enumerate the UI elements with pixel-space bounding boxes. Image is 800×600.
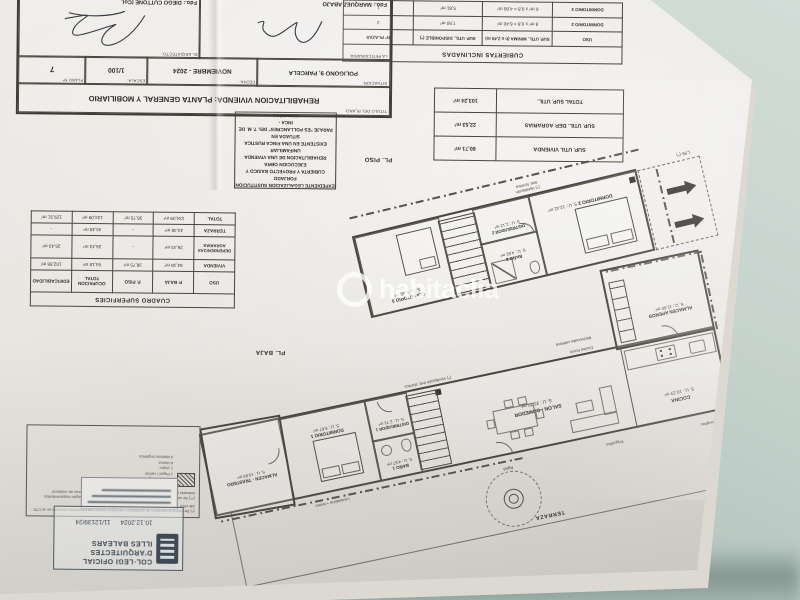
peticionaria-fdo: Fdo.: MARQUEZ ABAJO [323, 0, 387, 7]
hatched-legend-icon [177, 473, 195, 487]
escala-value: 1/100 [85, 66, 147, 74]
titulo-label: TITULO DEL PLANO: [345, 109, 387, 114]
college-logo-icon [156, 534, 178, 564]
legend-item: 3 Matèria Orgànica [99, 454, 173, 460]
escala-label: ESCALA: [127, 78, 145, 83]
stamp-org-line: ILLES BALEARS [83, 538, 153, 547]
expediente-line: EXISTENTE EN UNA FINCA RUSTICA SITUADA E… [235, 132, 335, 147]
expediente-line: EXPEDIENTE LEGALIZACION SUSTITUCION FORJ… [235, 175, 335, 190]
architects-college-stamp: COL·LEGI OFICIAL D'ARQUITECTES ILLES BAL… [53, 506, 184, 571]
arquitecto-label: EL ARQUITECTO: [162, 52, 198, 57]
plan-title: REHABILITACION VIVIENDA: PLANTA GENERAL … [19, 93, 389, 106]
title-block: TITULO DEL PLANO: REHABILITACION VIVIEND… [16, 0, 393, 118]
expediente-line: CUBIERTA Y PROYECTO BASICO Y EJECUCION O… [235, 161, 335, 176]
table-row: VIVIENDA 64,18 m² 38,75 m² 64,18 m² 102,… [31, 257, 235, 271]
plano-num-value: 7 [19, 64, 85, 74]
peticionaria-signature [249, 11, 329, 52]
arquitecto-signature [54, 5, 154, 52]
resumen-superficies-table: SUP. UTIL VIVIENDA 80,71 m² SUP. UTIL. D… [433, 88, 624, 163]
dimension-label: 1,98 (*) [676, 150, 691, 158]
watermark-logo-icon [337, 272, 372, 307]
fecha-value: NOVIEMBRE - 2024 [147, 67, 257, 75]
fecha-label: FECHA: [239, 80, 255, 85]
dining-chair [535, 409, 545, 419]
table-row: TOTAL SUP. UTIL. 103,24 m² [434, 88, 623, 114]
expediente-line: PARAJE "ES POLLANCRES" DEL T. M. DE INCA… [236, 118, 336, 133]
dining-chair [486, 419, 496, 429]
table-row: TERRAZA 43,48 m² - 43,48 m² - [31, 223, 235, 237]
table-row: SUP. UTIL VIVIENDA 80,71 m² [434, 136, 623, 162]
table-row: TOTAL 134,09 m² 38,75 m² 134,09 m² 129,3… [31, 211, 235, 225]
pl-piso-label: PL. PISO [358, 155, 398, 162]
legend-item: A Varios [99, 460, 173, 466]
table-row: DEPENDENCIAS AGRARIAS 26,43 m² - 26,43 m… [31, 235, 235, 259]
stamp-org-line: D'ARQUITECTES [82, 546, 152, 555]
legend-item: 1 Papel / cartón [99, 470, 173, 476]
arquitecto-fdo: Fdo.: DIEGO CUTTONE (Col. [121, 0, 197, 5]
pl-baja-label: PL. BAJA [250, 348, 290, 355]
table-header-row: USO P. BAJA P. PISO OCUPACION TOTAL EDIF… [30, 269, 234, 293]
bed-dorm1 [313, 432, 365, 482]
stamp-number: 11/12139/24 [75, 518, 110, 525]
stamp-date: 10.12.2024 [121, 518, 153, 525]
watermark: habitaclia [337, 272, 499, 307]
watermark-text: habitaclia [379, 274, 499, 305]
stamp-org-line: COL·LEGI OFICIAL [82, 555, 152, 564]
expediente-line: REHABILITACION DE UNA VIVIENDA UNIFAMILI… [235, 146, 335, 161]
plano-num-label: PLANO Nº [63, 78, 84, 83]
cuadro-superficies-title: CUADRO SUPERFICIES [30, 292, 234, 308]
legend-item: 1 Vidrio [99, 465, 173, 471]
expediente-text-box: EXPEDIENTE LEGALIZACION SUSTITUCION FORJ… [234, 111, 337, 189]
situacion-label: SITUACION: [362, 81, 387, 86]
situacion-value: POLIGONO 9, PARCELA [257, 69, 389, 76]
cuadro-superficies-table: CUADRO SUPERFICIES USO P. BAJA P. PISO O… [30, 210, 236, 308]
peticionaria-label: LA PETICIONARIA: [349, 54, 387, 59]
photo-of-floorplan: TERRAZA Agua COCINA S. U.: [0, 0, 800, 600]
stamp-white-box [81, 477, 178, 510]
table-row: SUP. UTIL. DEP. AGRARIAS 22,53 m² [434, 112, 623, 138]
